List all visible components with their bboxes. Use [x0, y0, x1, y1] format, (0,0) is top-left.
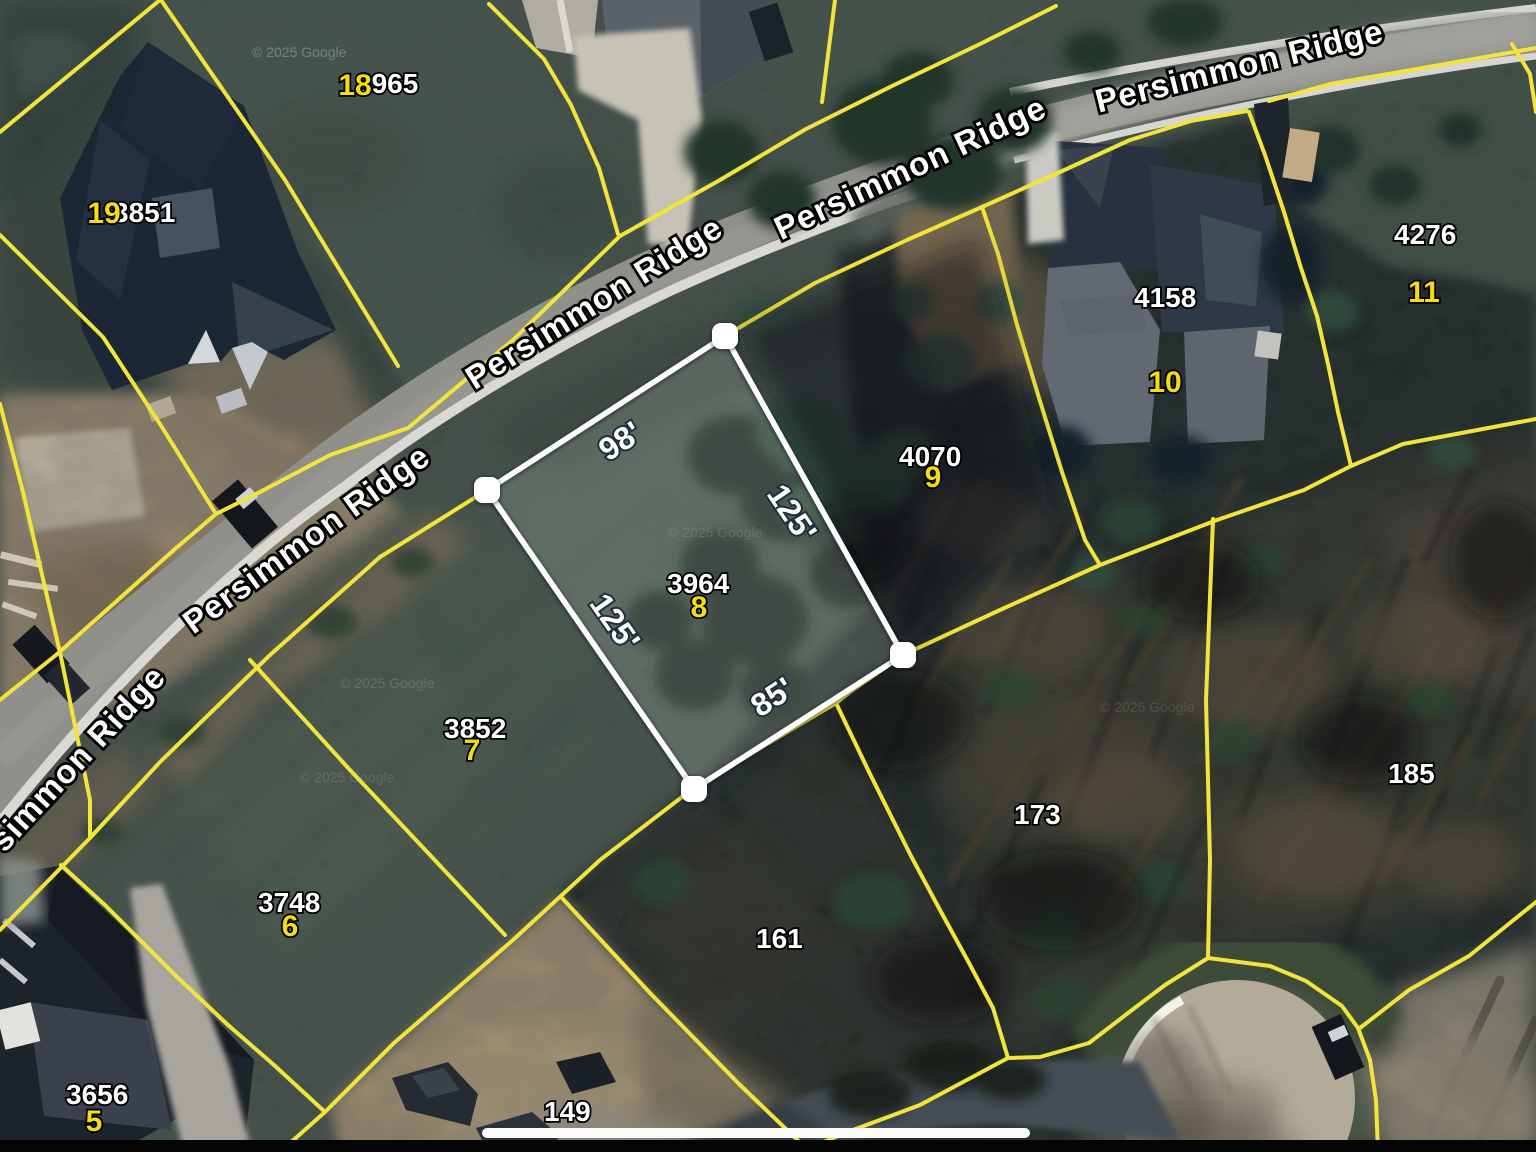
svg-text:9: 9 [925, 461, 942, 494]
svg-text:3851: 3851 [113, 197, 175, 228]
svg-text:5: 5 [86, 1105, 103, 1138]
svg-text:11: 11 [1408, 276, 1440, 309]
svg-text:19: 19 [87, 197, 120, 230]
svg-text:© 2025 Google: © 2025 Google [668, 524, 763, 540]
svg-text:161: 161 [756, 923, 803, 954]
svg-text:7: 7 [464, 734, 481, 767]
svg-text:© 2025 Google: © 2025 Google [1100, 699, 1195, 715]
svg-text:18: 18 [338, 69, 371, 102]
svg-text:© 2025 Google: © 2025 Google [300, 769, 395, 785]
svg-text:© 2025 Google: © 2025 Google [340, 675, 435, 691]
svg-text:10: 10 [1148, 366, 1181, 399]
svg-text:© 2025 Google: © 2025 Google [252, 44, 347, 60]
svg-text:4158: 4158 [1134, 282, 1196, 313]
svg-text:149: 149 [544, 1096, 591, 1127]
svg-text:8: 8 [691, 591, 708, 624]
svg-text:6: 6 [282, 910, 299, 943]
svg-text:173: 173 [1014, 799, 1061, 830]
svg-text:4276: 4276 [1394, 219, 1456, 250]
svg-text:185: 185 [1388, 758, 1435, 789]
